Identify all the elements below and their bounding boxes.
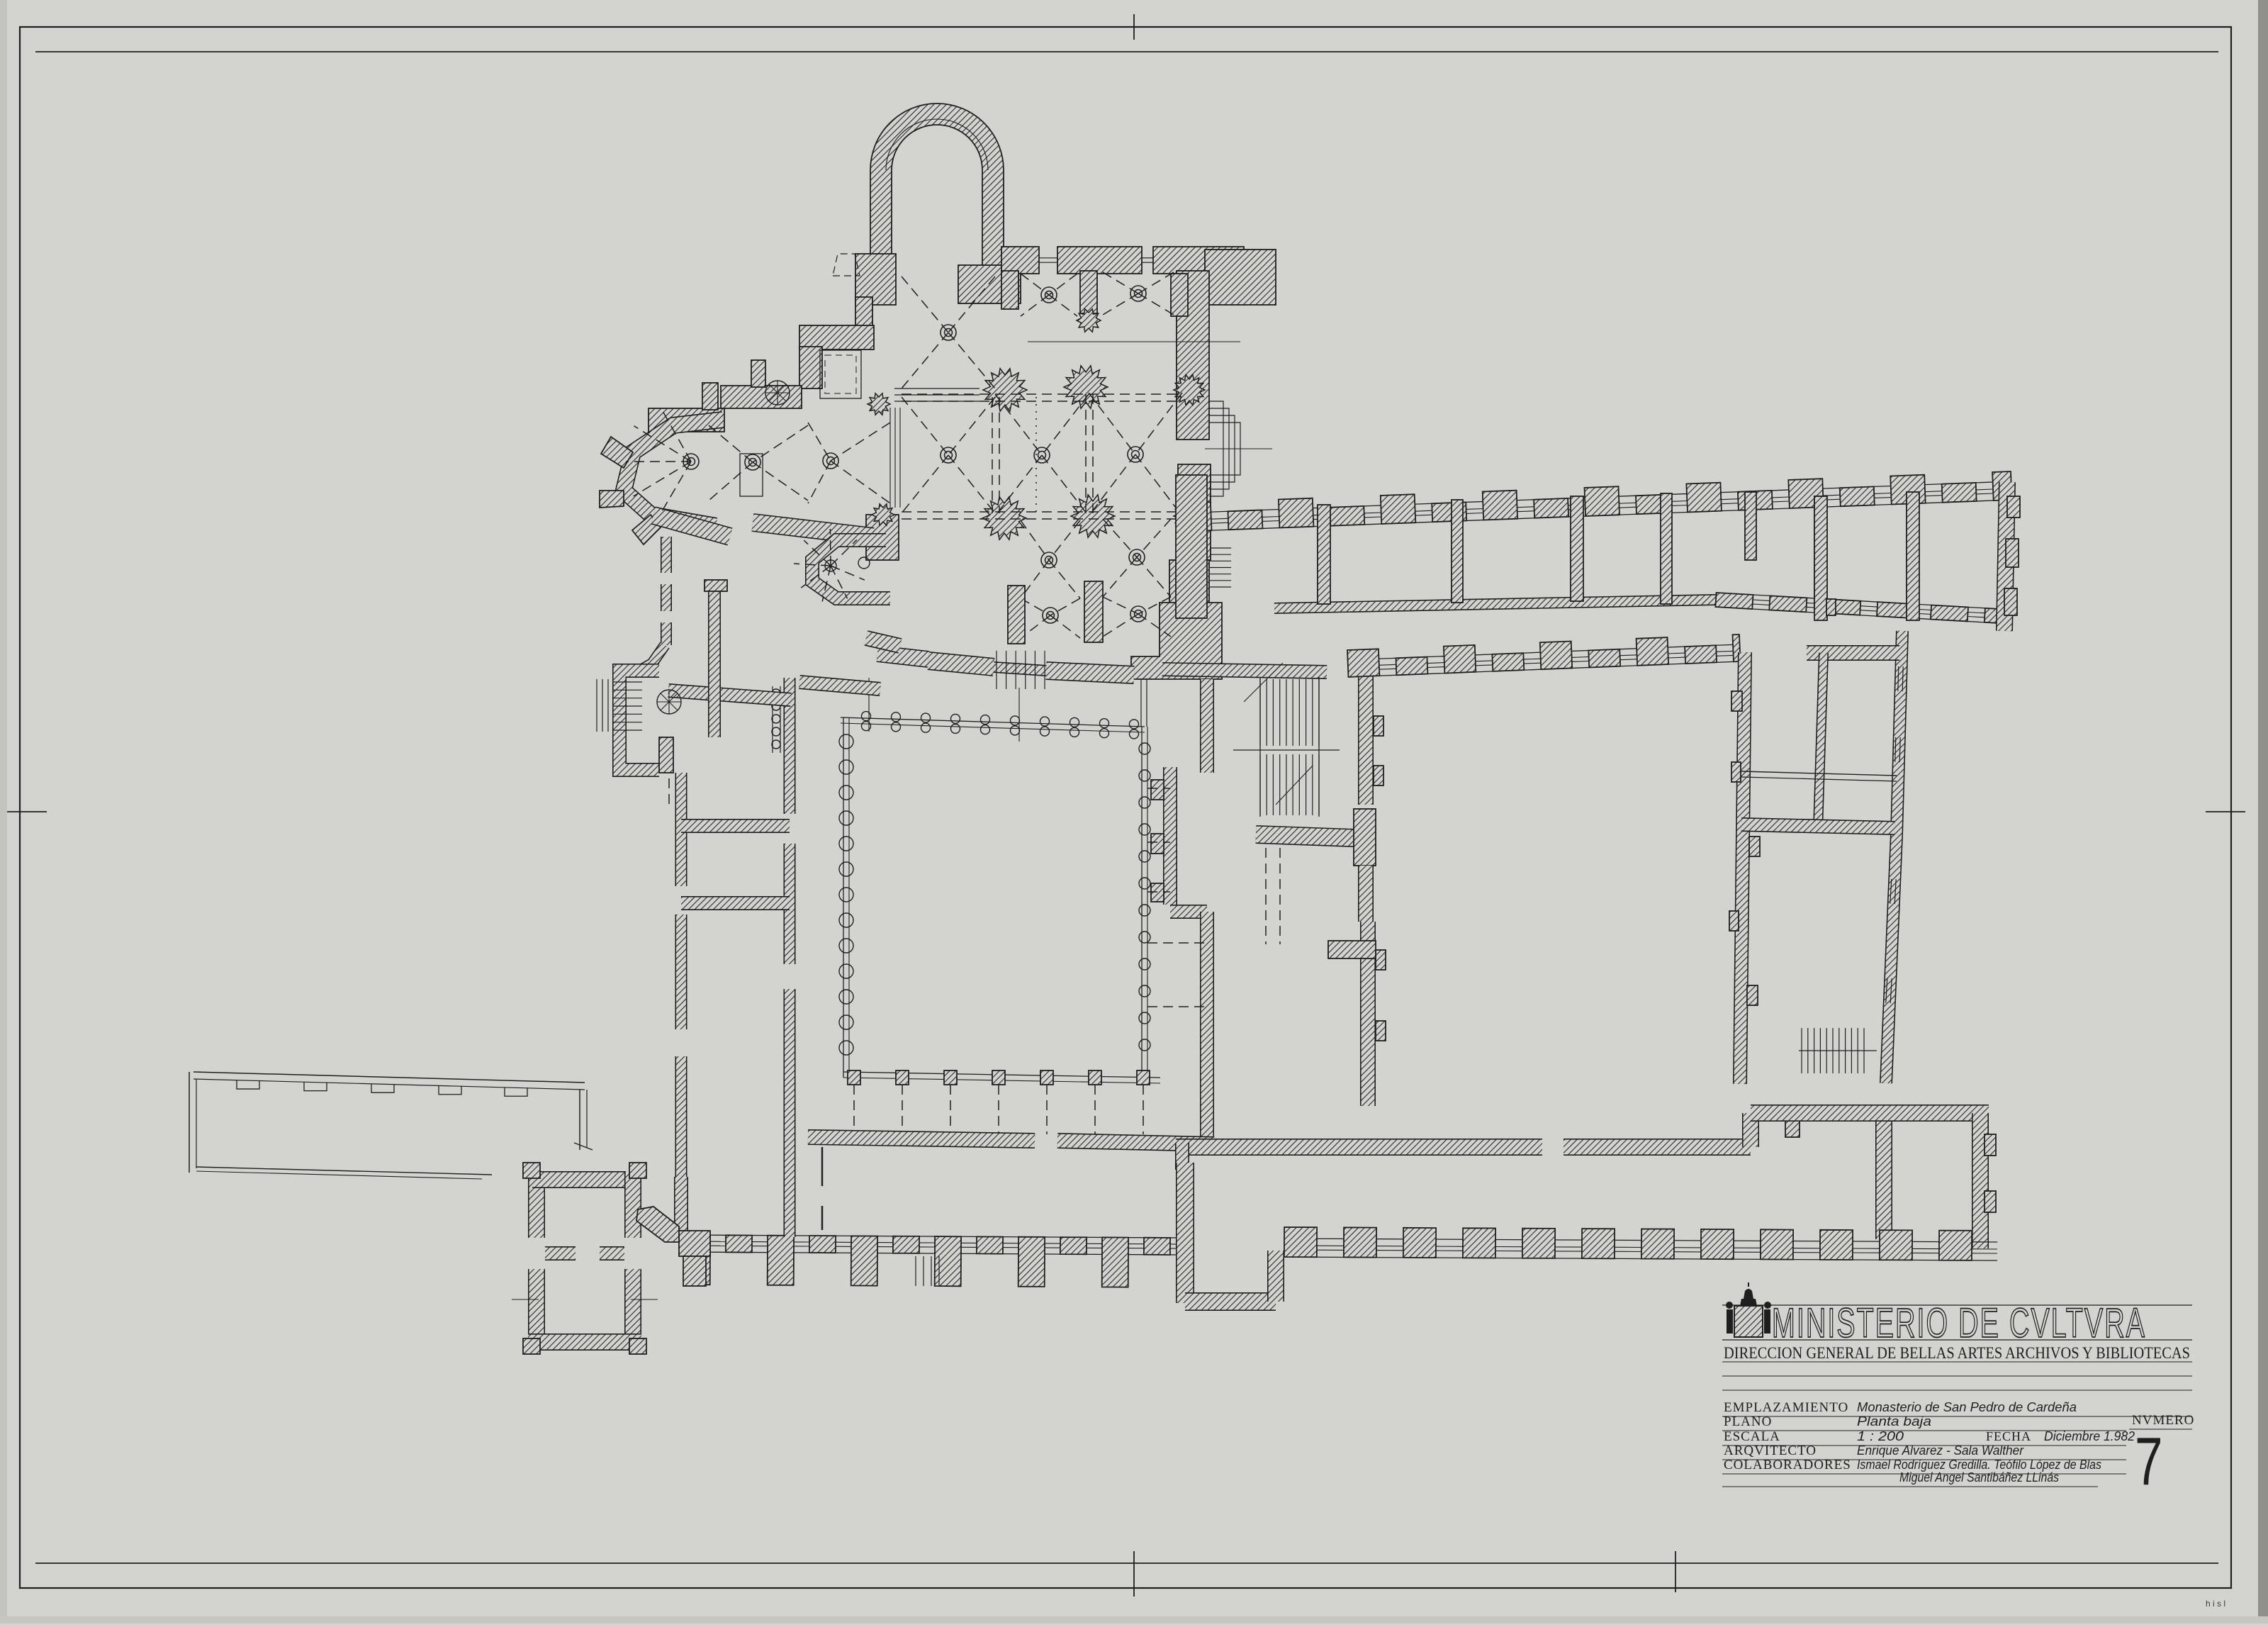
svg-text:MINISTERIO DE CVLTVRA: MINISTERIO DE CVLTVRA [1772, 1300, 2146, 1346]
svg-text:ARQVITECTO: ARQVITECTO [1724, 1443, 1817, 1458]
svg-text:Monasterio de San Pedro de: Monasterio de San Pedro de Cardeña [1857, 1399, 2077, 1414]
svg-text:DIRECCION GENERAL DE BELLAS AR: DIRECCION GENERAL DE BELLAS ARTES ARCHIV… [1724, 1344, 2190, 1362]
svg-text:FECHA: FECHA [1986, 1429, 2031, 1443]
svg-text:ESCALA: ESCALA [1724, 1429, 1780, 1444]
svg-text:COLABORADORES: COLABORADORES [1724, 1458, 1851, 1472]
svg-text:h i s l: h i s l [2206, 1599, 2225, 1609]
svg-text:PLANO: PLANO [1724, 1414, 1772, 1429]
svg-text:Planta baja: Planta baja [1857, 1414, 1931, 1428]
svg-text:EMPLAZAMIENTO: EMPLAZAMIENTO [1724, 1400, 1848, 1415]
svg-text:Enrique Alvarez - Sala Walth: Enrique Alvarez - Sala Walther [1857, 1443, 2024, 1458]
svg-text:Diciembre 1.982: Diciembre 1.982 [2044, 1428, 2135, 1443]
svg-text:7: 7 [2135, 1424, 2163, 1499]
svg-text:1 : 200: 1 : 200 [1857, 1428, 1904, 1443]
svg-text:Miguel Angel Santibáñez LLi: Miguel Angel Santibáñez LLinás [1899, 1470, 2059, 1485]
